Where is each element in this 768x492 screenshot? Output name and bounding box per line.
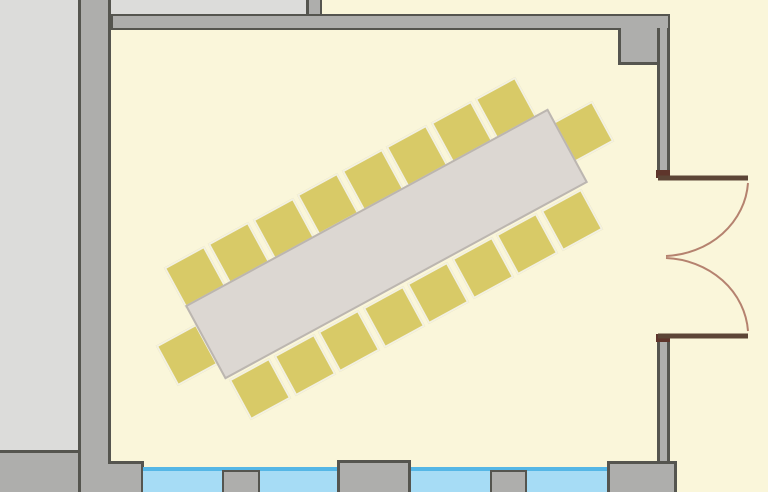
window-mullion-2 xyxy=(490,470,527,492)
door-swing-arc-top xyxy=(666,183,748,256)
door-jamb-top xyxy=(656,170,670,178)
right-wall-lower xyxy=(657,342,670,463)
window-mullion-1 xyxy=(222,470,260,492)
right-wall-upper xyxy=(657,28,670,170)
top-right-corner-column xyxy=(618,28,659,65)
bottom-left-pillar xyxy=(108,461,144,492)
top-wall xyxy=(111,14,670,30)
door-jamb-bottom xyxy=(656,334,670,342)
left-wall xyxy=(78,0,111,492)
door-swing-arc-bottom xyxy=(666,258,748,331)
bottom-right-pillar xyxy=(607,461,677,492)
adjacent-room-left xyxy=(0,0,81,453)
bottom-wall-pillar-1 xyxy=(337,460,411,492)
floor-plan xyxy=(0,0,768,492)
